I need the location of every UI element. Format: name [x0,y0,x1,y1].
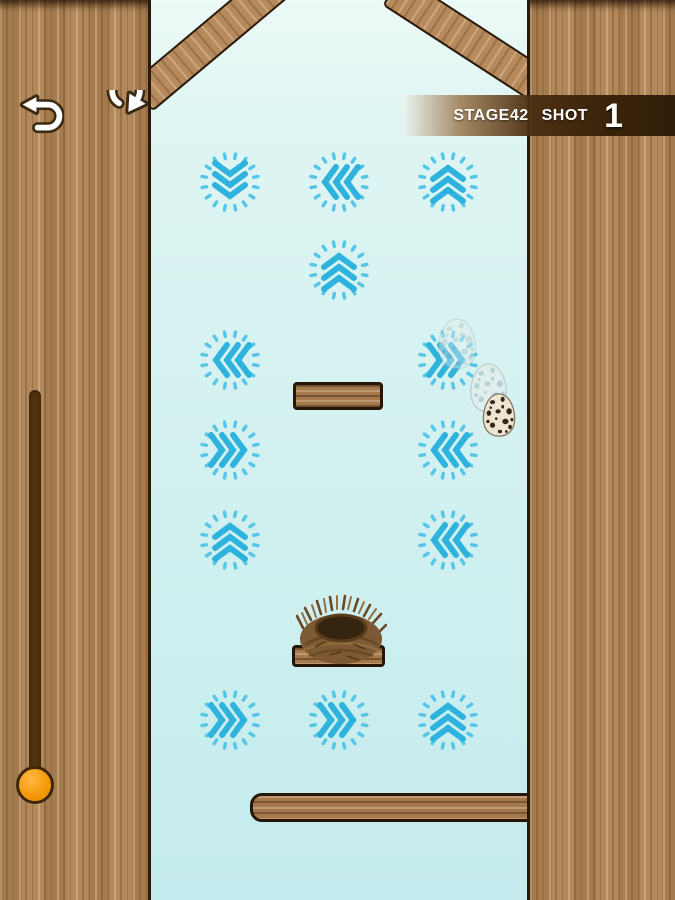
restart-button[interactable] [103,90,149,136]
direction-indicator-up [200,510,260,570]
restart-arrow-icon [103,90,149,136]
direction-indicator-up [418,152,478,212]
nest [295,592,387,666]
direction-indicator-right [309,690,369,750]
direction-indicator-right [200,690,260,750]
direction-indicator-left [200,330,260,390]
shot-value: 1 [604,99,623,133]
wooden-platform [250,793,531,822]
stage-label: STAGE42 [453,107,528,125]
direction-indicator-right [200,420,260,480]
shot-label: SHOT [542,107,588,125]
hud-bar: STAGE42 SHOT 1 [393,95,675,136]
game-screen: STAGE42 SHOT 1 [0,0,675,900]
power-slider-knob[interactable] [16,766,54,804]
nest-graphic [295,592,387,666]
direction-indicator-up [418,690,478,750]
direction-indicator-left [418,420,478,480]
undo-button[interactable] [18,92,64,138]
undo-arrow-icon [18,92,64,138]
direction-indicator-left [309,152,369,212]
direction-indicator-down [200,152,260,212]
direction-indicator-up [309,240,369,300]
power-slider-track[interactable] [29,390,41,792]
egg [480,392,518,443]
wooden-platform [293,382,383,410]
direction-indicator-left [418,510,478,570]
